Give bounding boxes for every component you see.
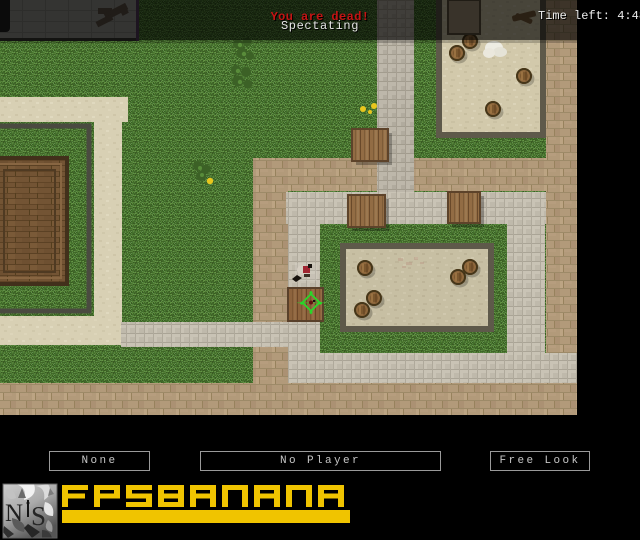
svg-text:S: S	[31, 501, 46, 531]
svg-text:N: N	[5, 500, 23, 527]
